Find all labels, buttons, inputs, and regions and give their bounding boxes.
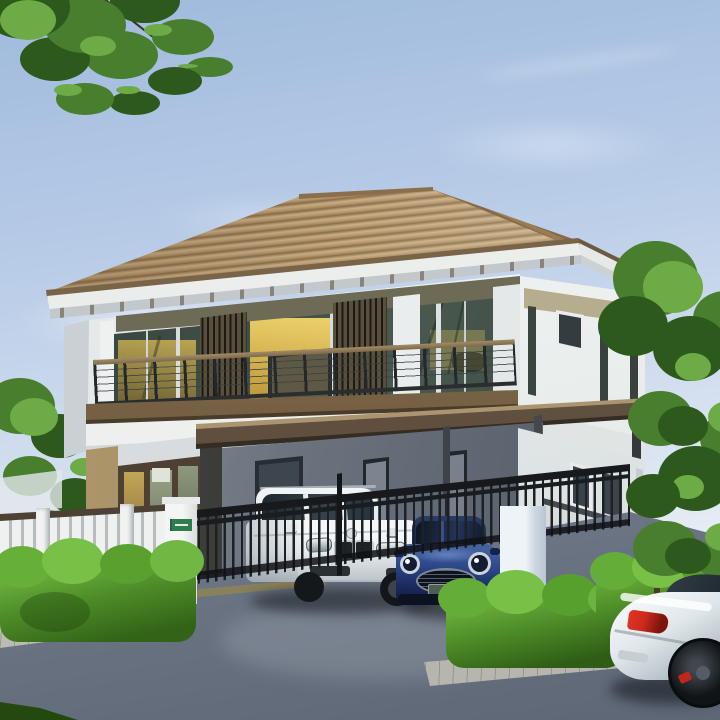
white-coupe [610, 566, 720, 720]
foliage [10, 398, 58, 436]
hedge-bump [100, 544, 156, 584]
mini-headlight-lens [471, 555, 488, 572]
foliage [598, 296, 668, 356]
coupe-brake-caliper [678, 671, 693, 684]
address-sign [170, 519, 192, 531]
foliage [0, 0, 56, 40]
tree-branch-top-left [0, 0, 220, 175]
suv-wheel [294, 572, 324, 602]
hedge-bump [438, 578, 492, 618]
address-sign-text-line [175, 524, 188, 526]
mini-headlight-glint [405, 559, 410, 564]
hedge-left [0, 562, 196, 642]
twig [98, 0, 162, 44]
mini-headlight [400, 554, 420, 574]
mini-headlight [468, 552, 491, 575]
mini-mirror [490, 548, 500, 555]
coupe-wheel-hub [696, 666, 710, 680]
rendering-canvas [0, 0, 720, 720]
cloud [420, 118, 680, 172]
hedge-bump [42, 538, 104, 584]
hedge-bump [486, 570, 546, 614]
mini-headlight-glint [474, 558, 479, 563]
door-transom-pane [152, 468, 170, 482]
pillar-cap [162, 497, 200, 504]
hedge-bump [150, 540, 204, 582]
hedge-bump [20, 592, 90, 632]
